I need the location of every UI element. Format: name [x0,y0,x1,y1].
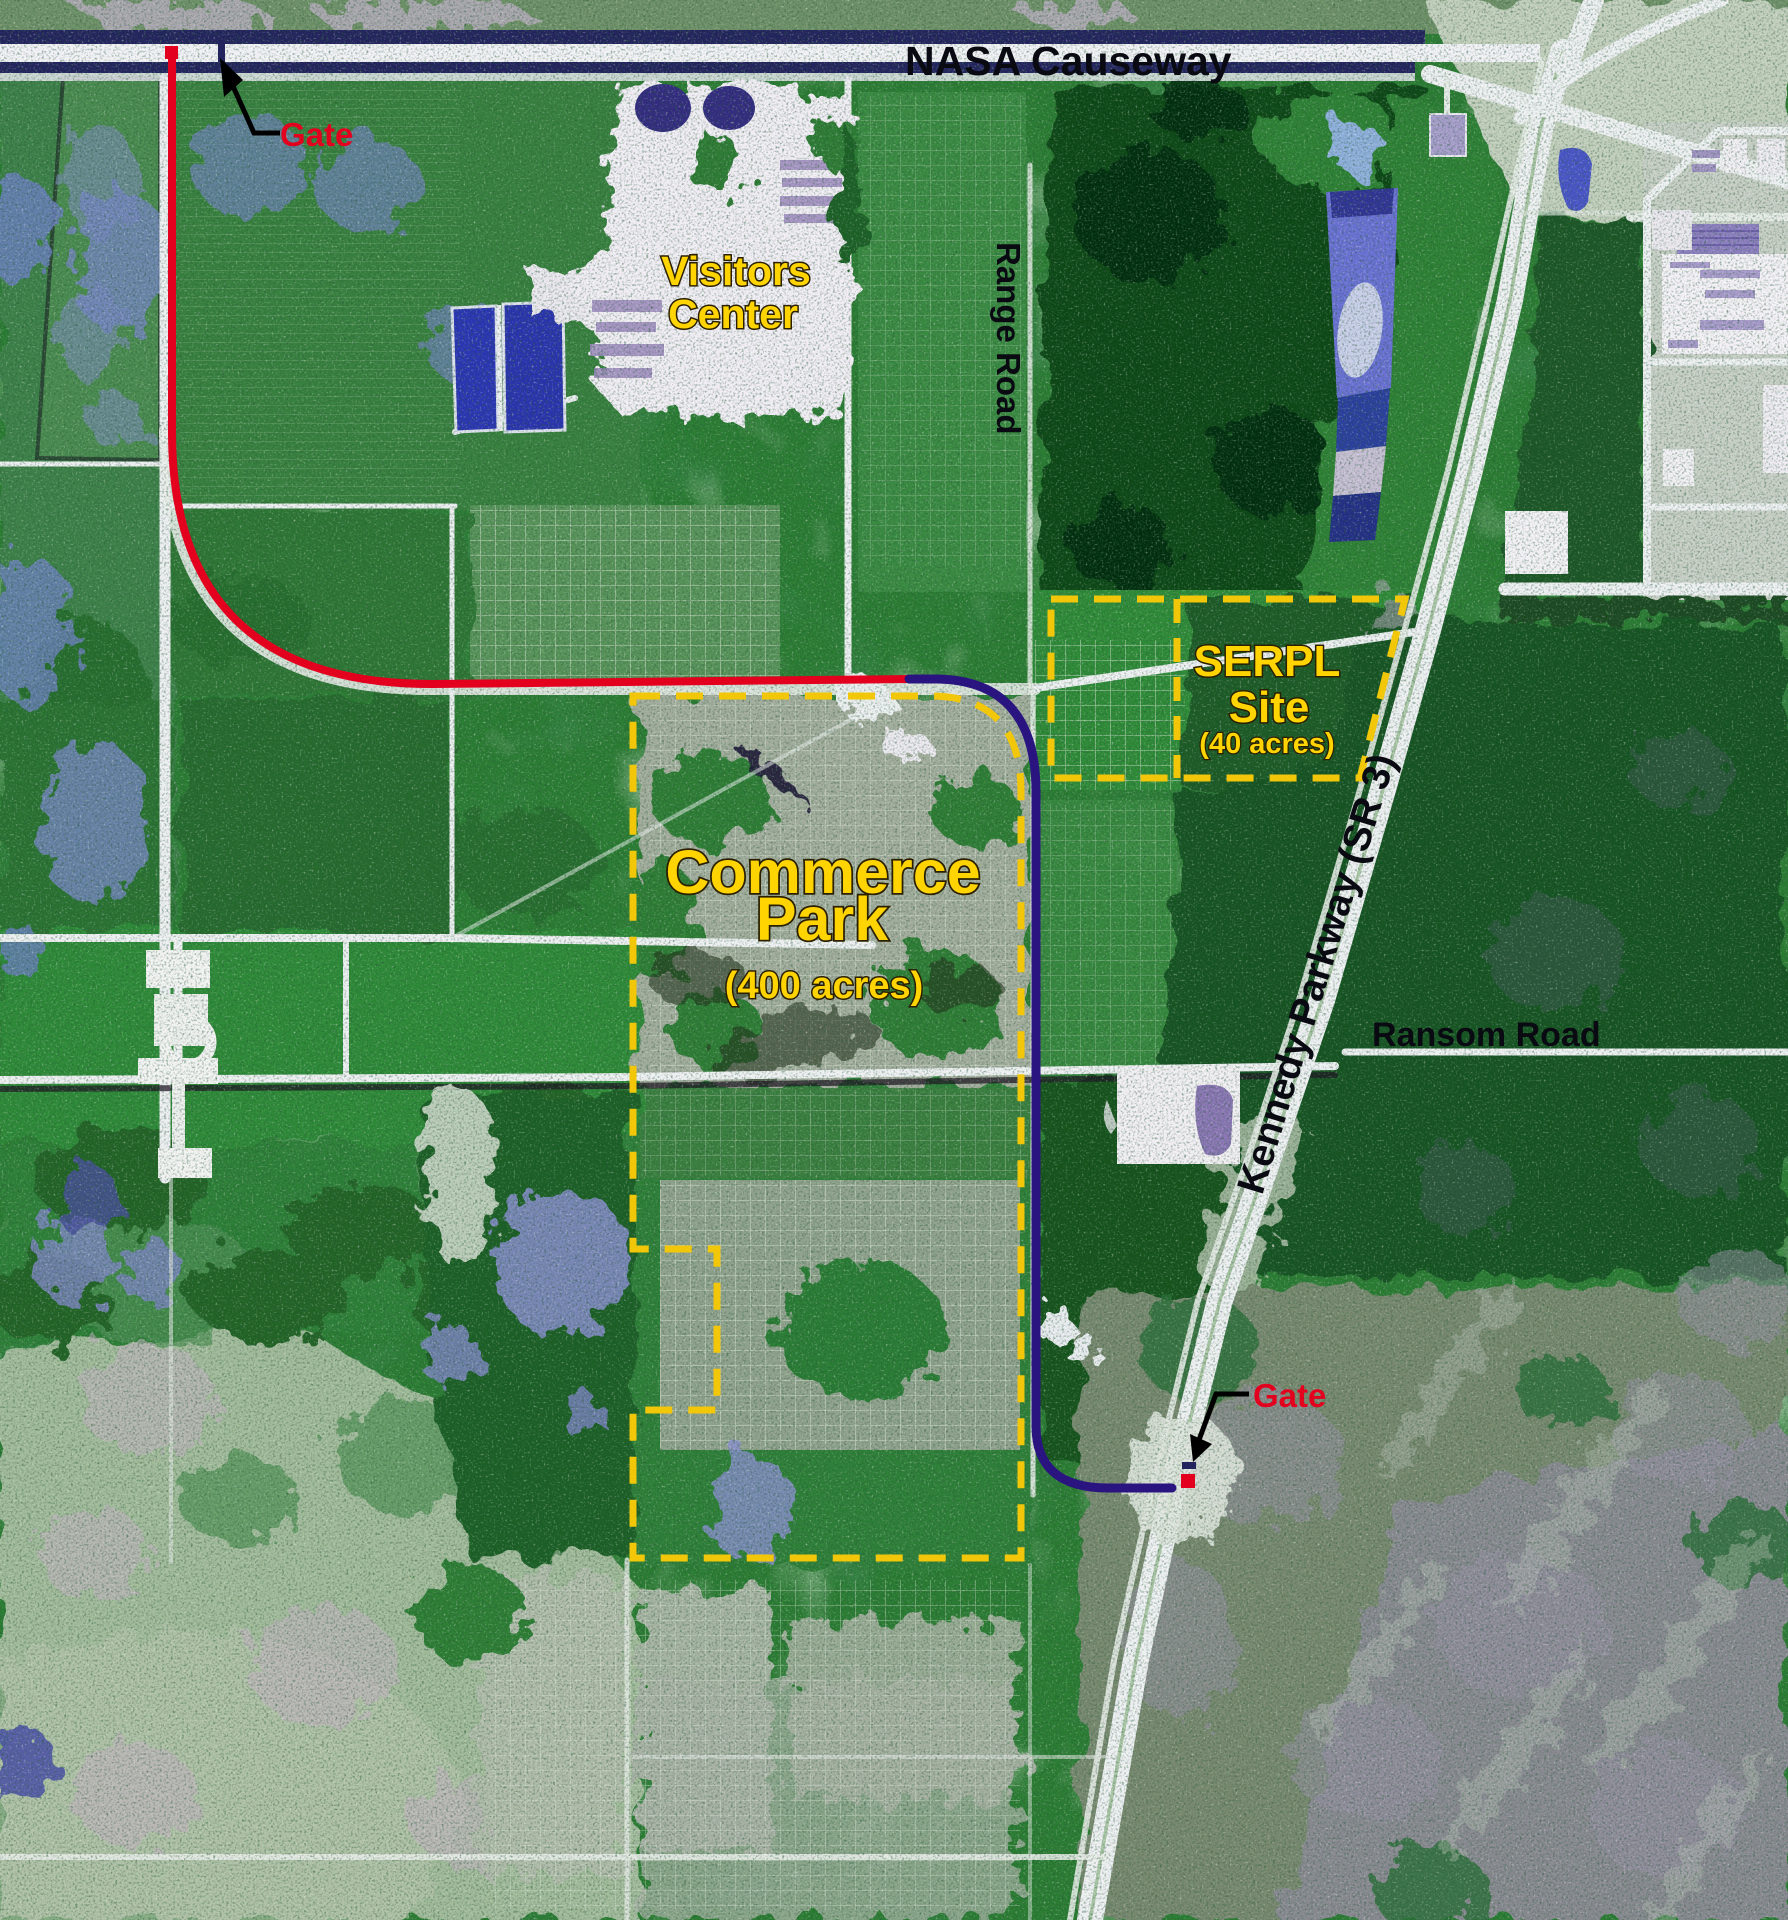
svg-text:Gate: Gate [280,116,353,153]
svg-text:Center: Center [668,291,798,337]
svg-text:Gate: Gate [1253,1377,1326,1414]
svg-text:(400 acres): (400 acres) [725,965,924,1007]
svg-text:Site: Site [1229,683,1310,732]
svg-text:Park: Park [756,885,888,953]
svg-text:(40 acres): (40 acres) [1199,728,1334,760]
svg-text:NASA Causeway: NASA Causeway [905,38,1232,84]
svg-text:Visitors: Visitors [661,248,811,294]
svg-text:SERPL: SERPL [1194,637,1341,686]
svg-text:Ransom Road: Ransom Road [1372,1016,1601,1054]
svg-text:Range Road: Range Road [990,242,1027,435]
